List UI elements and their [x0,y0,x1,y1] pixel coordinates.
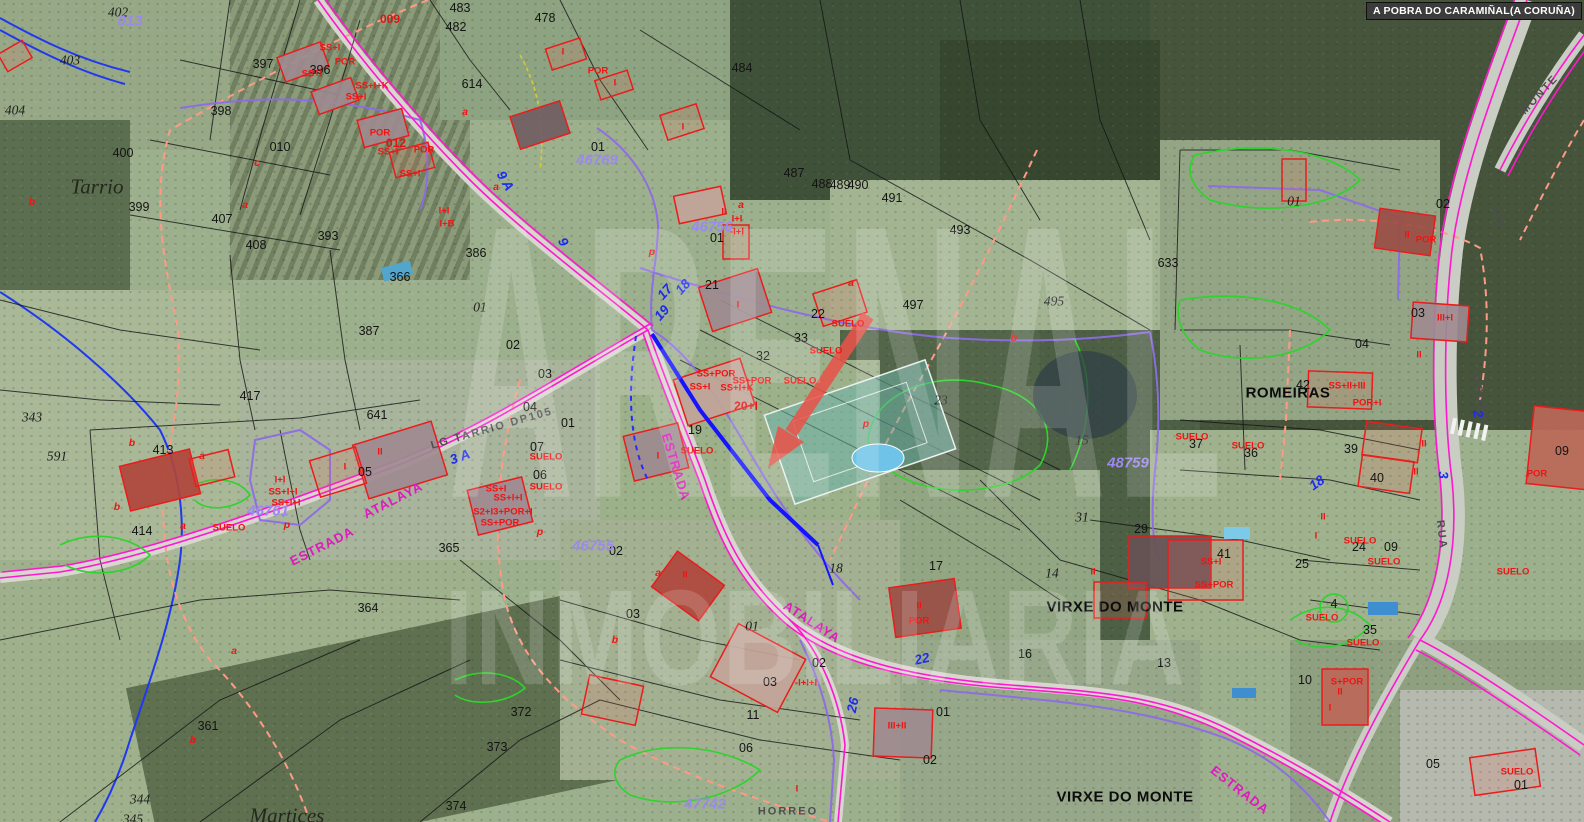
map-linework [0,0,1584,822]
swimming-pools [381,260,1398,698]
map-viewport[interactable]: ARENAL INMOBILIARIA 39739840001039940740… [0,0,1584,822]
stream-lines [0,18,182,822]
municipality-badge: A POBRA DO CARAMIÑAL(A CORUÑA) [1366,2,1582,20]
pond [1033,351,1137,439]
